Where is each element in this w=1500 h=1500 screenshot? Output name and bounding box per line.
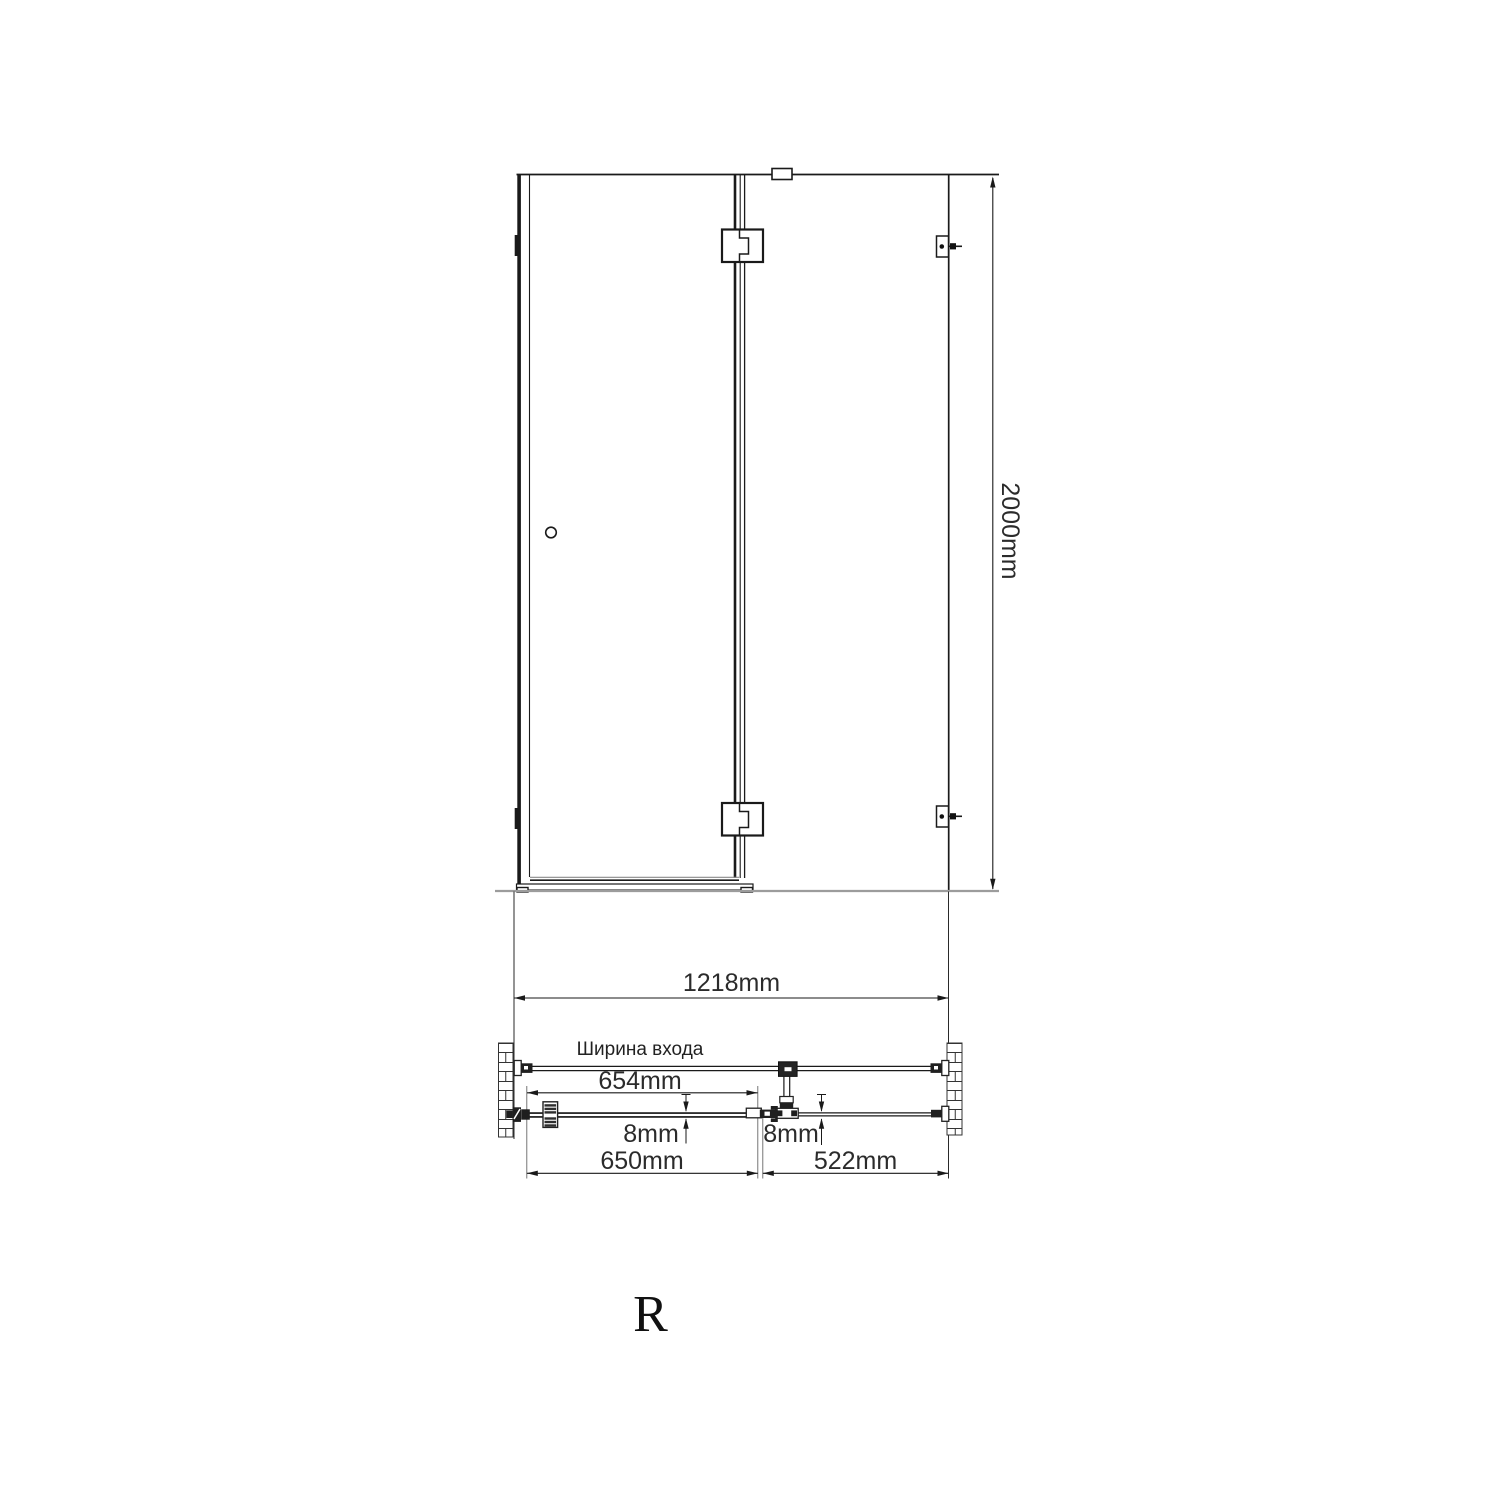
handle-stripe [545,1117,557,1119]
left-wall-mount-top [515,235,519,256]
fixed-glass-right-mount [931,1110,942,1118]
dim-654-arrow-left [527,1090,538,1095]
dim-650-arrow-right [747,1171,758,1176]
dim-8-left-arrow-down [683,1102,688,1113]
entrance-width-label: Ширина входа [577,1039,704,1060]
door-width-dimension-label: 650mm [600,1147,683,1175]
wall-section-left [499,1043,514,1137]
entrance-width-dimension-label: 654mm [598,1067,681,1095]
wall-bracket-bottom-right [937,806,963,827]
dimension-height: 2000mm [990,177,1024,890]
dim-522-arrow-left [763,1171,774,1176]
dimension-door-glass-thickness: 8mm [623,1095,690,1149]
handle-stripe [545,1104,557,1106]
stabilizer-bar [514,1061,949,1110]
wall-bracket-top-right [937,236,963,257]
dimension-panel-width: 522mm [763,1147,949,1176]
bar-right-fitting-highlight [934,1066,938,1070]
dim-522-arrow-right [938,1171,949,1176]
left-wall-profile [515,175,530,886]
dim-8-right-arrow-down [819,1102,824,1113]
door-handle-plan [543,1102,558,1128]
hinge-bottom [722,803,763,836]
height-dimension-label: 2000mm [996,482,1024,579]
bar-tee-bracket-slot [785,1067,792,1071]
dimension-entrance-width: 654mm [527,1067,758,1096]
hinge-plan-door-leaf [746,1108,761,1118]
bar-right-wall-plate [942,1061,949,1076]
orientation-letter: R [633,1286,668,1343]
dim-height-arrow-up [990,177,995,188]
fixed-glass-right-wall-plate [942,1106,949,1121]
strut-adjuster-upper [780,1097,793,1103]
dim-8-left-arrow-up [683,1118,688,1129]
left-wall-mount-bottom [515,808,519,829]
dim-8-right-arrow-up [819,1118,824,1129]
hinge-top-body [722,230,763,263]
bracket-pin-tip [950,243,956,249]
clamp-screw-right [791,1110,797,1116]
mount-anchor [506,1110,512,1118]
door-bottom-seal [530,877,739,880]
handle-stripe [545,1124,557,1126]
door-handle-knob [546,527,557,538]
bar-left-fitting-highlight [524,1066,528,1070]
bracket-screw [940,814,945,819]
hinge-plan-tab-top [771,1106,778,1110]
handle-stripe [545,1111,557,1113]
bar-left-wall-plate [514,1061,521,1076]
left-profile-bar [517,175,521,886]
bracket-screw [940,244,945,249]
dim-height-arrow-down [990,879,995,890]
hinge-plan-slot [765,1112,770,1116]
dim-1218-arrow-left [514,995,525,1000]
stabilizer-bar-end-cap [772,169,792,180]
glass-clamp [776,1108,798,1118]
total-width-dimension-label: 1218mm [683,969,780,997]
mount-clamp [521,1109,530,1119]
door-hinge-edge [735,175,745,879]
bracket-pin-tip [950,813,956,819]
dim-650-arrow-left [527,1171,538,1176]
drawing-page: 2000mm 1218mm Ширина входа [0,0,1500,1500]
dimension-total-width: 1218mm [514,969,949,1001]
hinge-bottom-body [722,803,763,836]
handle-stripe [545,1121,557,1123]
hinge-top [722,230,763,263]
handle-stripe [545,1108,557,1110]
dim-654-arrow-right [747,1090,758,1095]
dimension-panel-glass-thickness: 8mm [763,1095,826,1149]
panel-width-dimension-label: 522mm [814,1147,897,1175]
plan-view: 1218mm Ширина входа [499,892,963,1179]
panel-glass-thickness-label: 8mm [763,1120,819,1148]
sill-rail [517,884,754,890]
door-glass-thickness-label: 8mm [623,1120,679,1148]
front-view: 2000mm [495,169,1024,893]
technical-drawing-canvas: 2000mm 1218mm Ширина входа [0,0,1500,1500]
dimension-door-width: 650mm [527,1147,758,1176]
dim-1218-arrow-right [938,995,949,1000]
